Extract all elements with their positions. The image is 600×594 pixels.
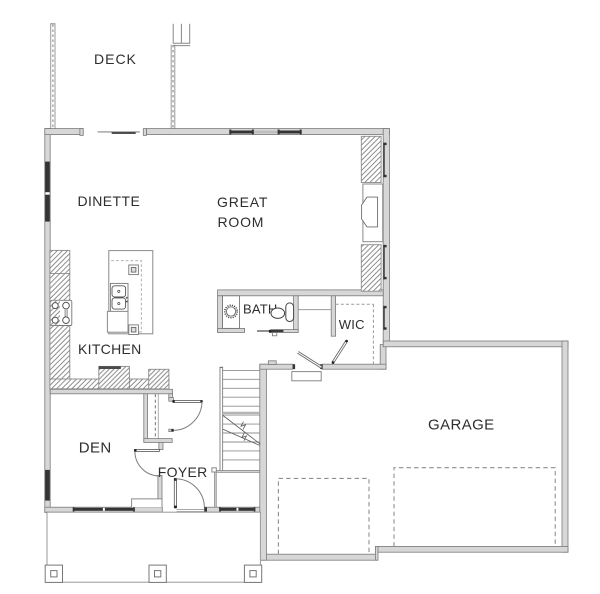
svg-text:KITCHEN: KITCHEN [78, 341, 142, 357]
svg-text:DECK: DECK [94, 51, 137, 67]
svg-text:ROOM: ROOM [218, 214, 265, 230]
svg-text:DINETTE: DINETTE [78, 193, 141, 209]
svg-text:GREAT: GREAT [217, 194, 268, 210]
svg-text:DEN: DEN [79, 440, 112, 457]
svg-text:WIC: WIC [339, 317, 365, 332]
svg-text:GARAGE: GARAGE [428, 417, 495, 434]
svg-text:FOYER: FOYER [158, 464, 208, 480]
